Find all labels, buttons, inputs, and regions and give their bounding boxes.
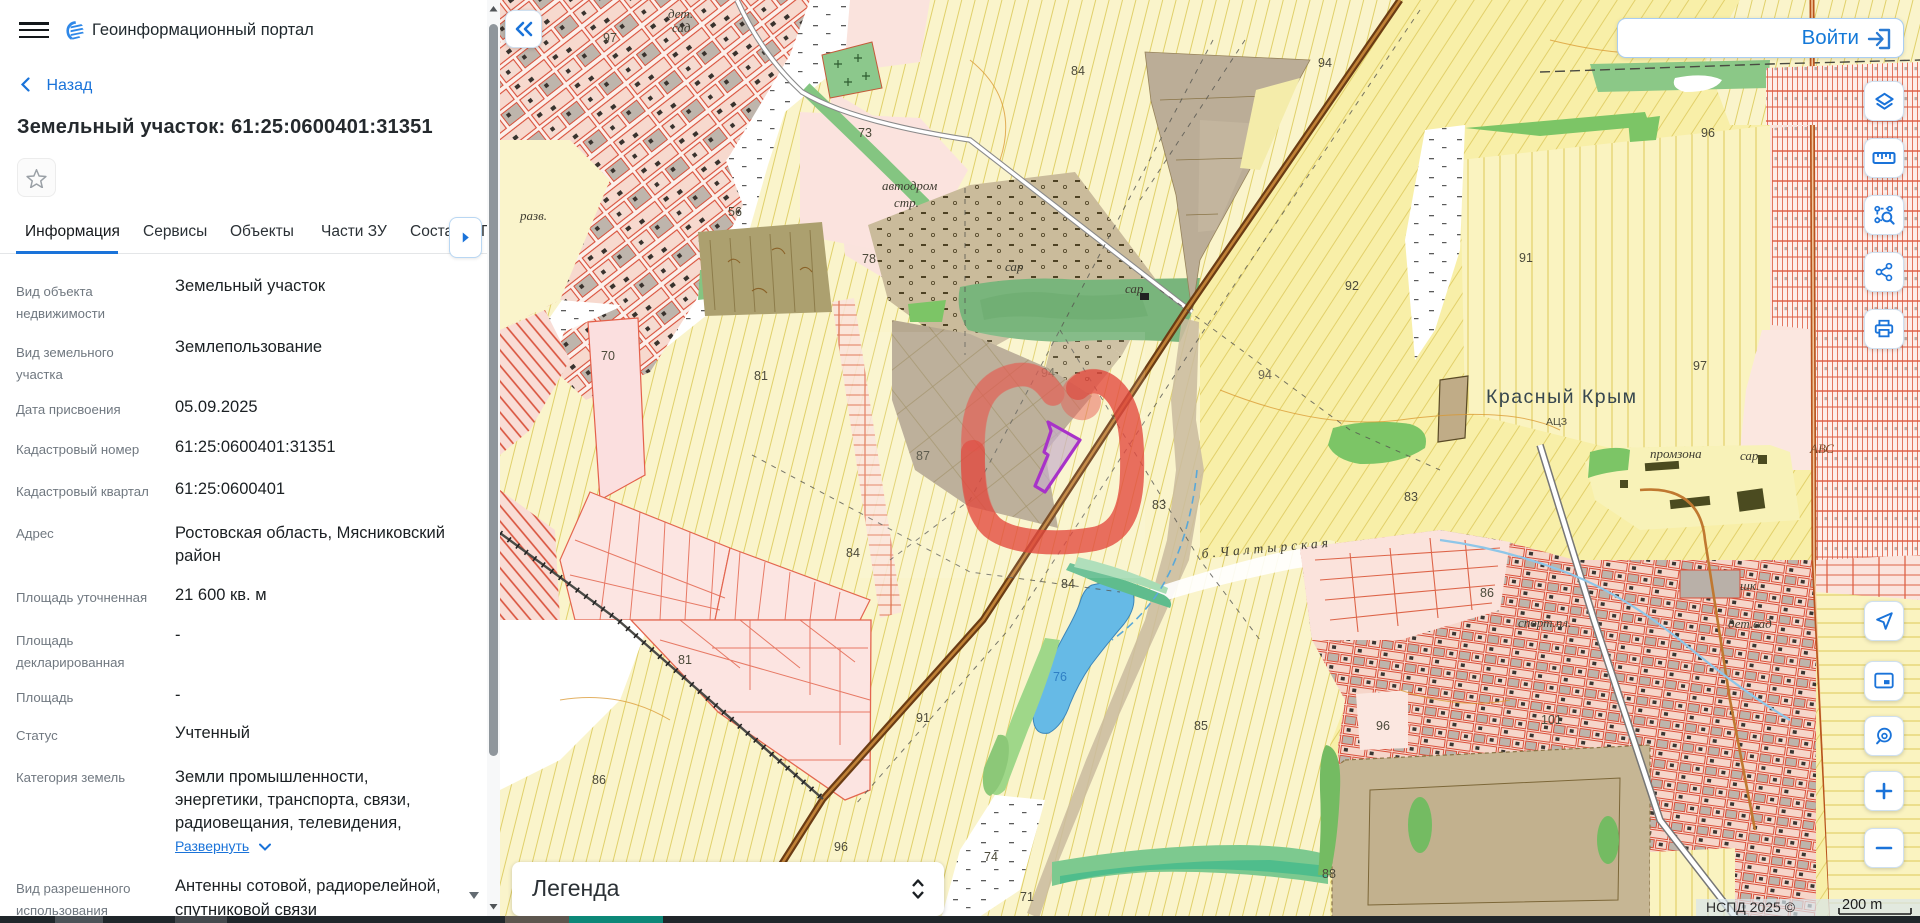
svg-text:81: 81 (678, 653, 692, 667)
svg-text:шк.: шк. (1740, 578, 1759, 593)
svg-text:85: 85 (1194, 719, 1208, 733)
svg-text:стр.: стр. (894, 195, 919, 210)
svg-text:84: 84 (1061, 577, 1075, 591)
svg-text:76: 76 (1053, 670, 1067, 684)
svg-text:разв.: разв. (519, 208, 547, 223)
svg-text:91: 91 (916, 711, 930, 725)
svg-text:АЦЗ: АЦЗ (1546, 416, 1567, 428)
svg-text:Красный Крым: Красный Крым (1486, 386, 1638, 408)
svg-text:83: 83 (1404, 490, 1418, 504)
svg-text:81: 81 (754, 369, 768, 383)
svg-text:71: 71 (1020, 890, 1034, 904)
svg-text:АВС: АВС (1809, 441, 1834, 456)
svg-text:автодром: автодром (882, 178, 937, 193)
svg-text:96: 96 (1376, 719, 1390, 733)
svg-text:84: 84 (846, 546, 860, 560)
svg-text:97: 97 (1693, 359, 1707, 373)
svg-text:74: 74 (984, 850, 998, 864)
svg-text:70: 70 (601, 349, 615, 363)
svg-text:86: 86 (592, 773, 606, 787)
svg-text:101: 101 (1541, 713, 1562, 727)
svg-text:96: 96 (1701, 126, 1715, 140)
svg-text:88: 88 (1322, 867, 1336, 881)
svg-text:97: 97 (603, 31, 617, 45)
svg-text:83: 83 (1152, 498, 1166, 512)
svg-text:78: 78 (862, 252, 876, 266)
svg-text:спорт.пл.: спорт.пл. (1518, 615, 1571, 630)
svg-text:94: 94 (1258, 368, 1272, 382)
svg-text:промзона: промзона (1650, 446, 1702, 461)
svg-text:92: 92 (1345, 279, 1359, 293)
svg-text:дет.сад: дет.сад (1728, 616, 1772, 631)
svg-text:сад: сад (672, 20, 691, 35)
svg-text:дет.: дет. (668, 6, 693, 21)
svg-text:сар.: сар. (1740, 448, 1762, 463)
svg-text:91: 91 (1519, 251, 1533, 265)
svg-text:84: 84 (1071, 64, 1085, 78)
svg-text:56: 56 (728, 205, 742, 219)
svg-text:73: 73 (858, 126, 872, 140)
svg-text:сар: сар (1125, 281, 1144, 296)
svg-text:сар: сар (1005, 259, 1024, 274)
svg-text:86: 86 (1480, 586, 1494, 600)
svg-text:94: 94 (1318, 56, 1332, 70)
svg-text:96: 96 (834, 840, 848, 854)
